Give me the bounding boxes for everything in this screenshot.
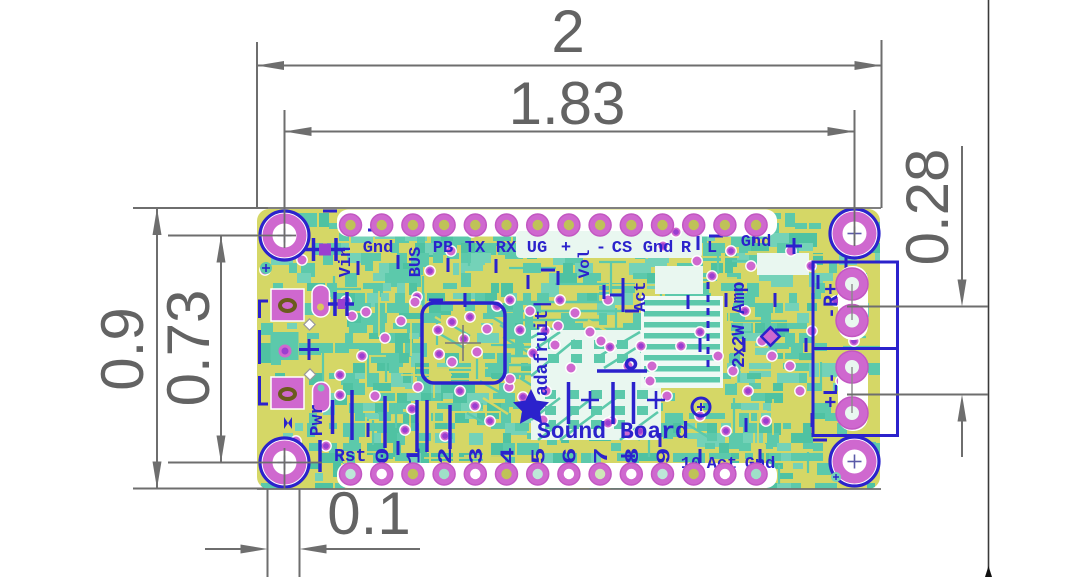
svg-text:RX: RX: [496, 239, 517, 258]
svg-text:9: 9: [654, 447, 675, 464]
svg-text:4: 4: [498, 447, 519, 464]
svg-text:2: 2: [551, 0, 584, 65]
svg-text:7: 7: [592, 447, 613, 464]
svg-text:2: 2: [436, 447, 457, 464]
svg-text:UG: UG: [527, 239, 547, 258]
svg-text:2x2W Amp: 2x2W Amp: [730, 282, 750, 368]
svg-text:Gnd: Gnd: [643, 239, 674, 258]
svg-text:R: R: [681, 239, 692, 258]
svg-text:3: 3: [467, 447, 488, 464]
svg-text:PB: PB: [433, 239, 453, 258]
svg-text:L: L: [707, 239, 717, 258]
svg-text:TX: TX: [465, 239, 486, 258]
svg-text:Vol: Vol: [576, 250, 594, 279]
svg-text:0.1: 0.1: [327, 480, 410, 547]
svg-text:0.9: 0.9: [89, 307, 156, 390]
svg-text:adafruit|: adafruit|: [533, 299, 553, 396]
svg-text:5: 5: [530, 447, 551, 464]
svg-text:+: +: [561, 239, 571, 258]
svg-text:Act: Act: [632, 281, 651, 312]
svg-text:Sound Board: Sound Board: [537, 419, 689, 445]
svg-text:0: 0: [374, 447, 395, 464]
svg-text:CS: CS: [612, 239, 632, 258]
svg-text:1.83: 1.83: [509, 70, 626, 137]
svg-text:0.73: 0.73: [155, 290, 222, 407]
svg-text:0.28: 0.28: [894, 149, 961, 266]
svg-text:8: 8: [623, 447, 644, 464]
svg-text:Pwr: Pwr: [308, 404, 328, 436]
svg-text:6: 6: [561, 447, 582, 464]
svg-text:-: -: [596, 239, 606, 258]
svg-text:BUS: BUS: [407, 247, 426, 278]
svg-text:Vin: Vin: [337, 247, 356, 278]
svg-text:Gnd: Gnd: [363, 239, 394, 258]
